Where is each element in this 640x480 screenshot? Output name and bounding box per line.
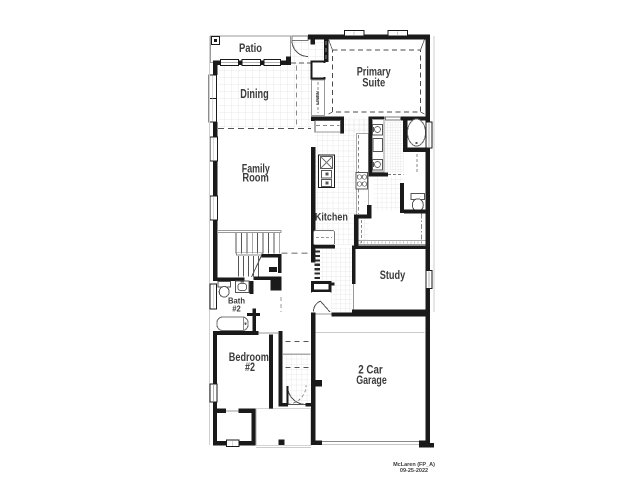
svg-text:#2: #2 [245,362,255,374]
svg-text:#2: #2 [232,305,241,314]
svg-text:Kitchen: Kitchen [315,212,348,224]
svg-text:Garage: Garage [356,375,387,387]
svg-text:Dining: Dining [240,86,269,101]
svg-text:Room: Room [242,173,269,185]
svg-text:Suite: Suite [362,75,385,89]
svg-text:Study: Study [380,270,406,282]
svg-text:09-25-2022: 09-25-2022 [400,468,428,474]
svg-text:LINEN: LINEN [315,91,320,105]
svg-text:Patio: Patio [239,43,262,55]
